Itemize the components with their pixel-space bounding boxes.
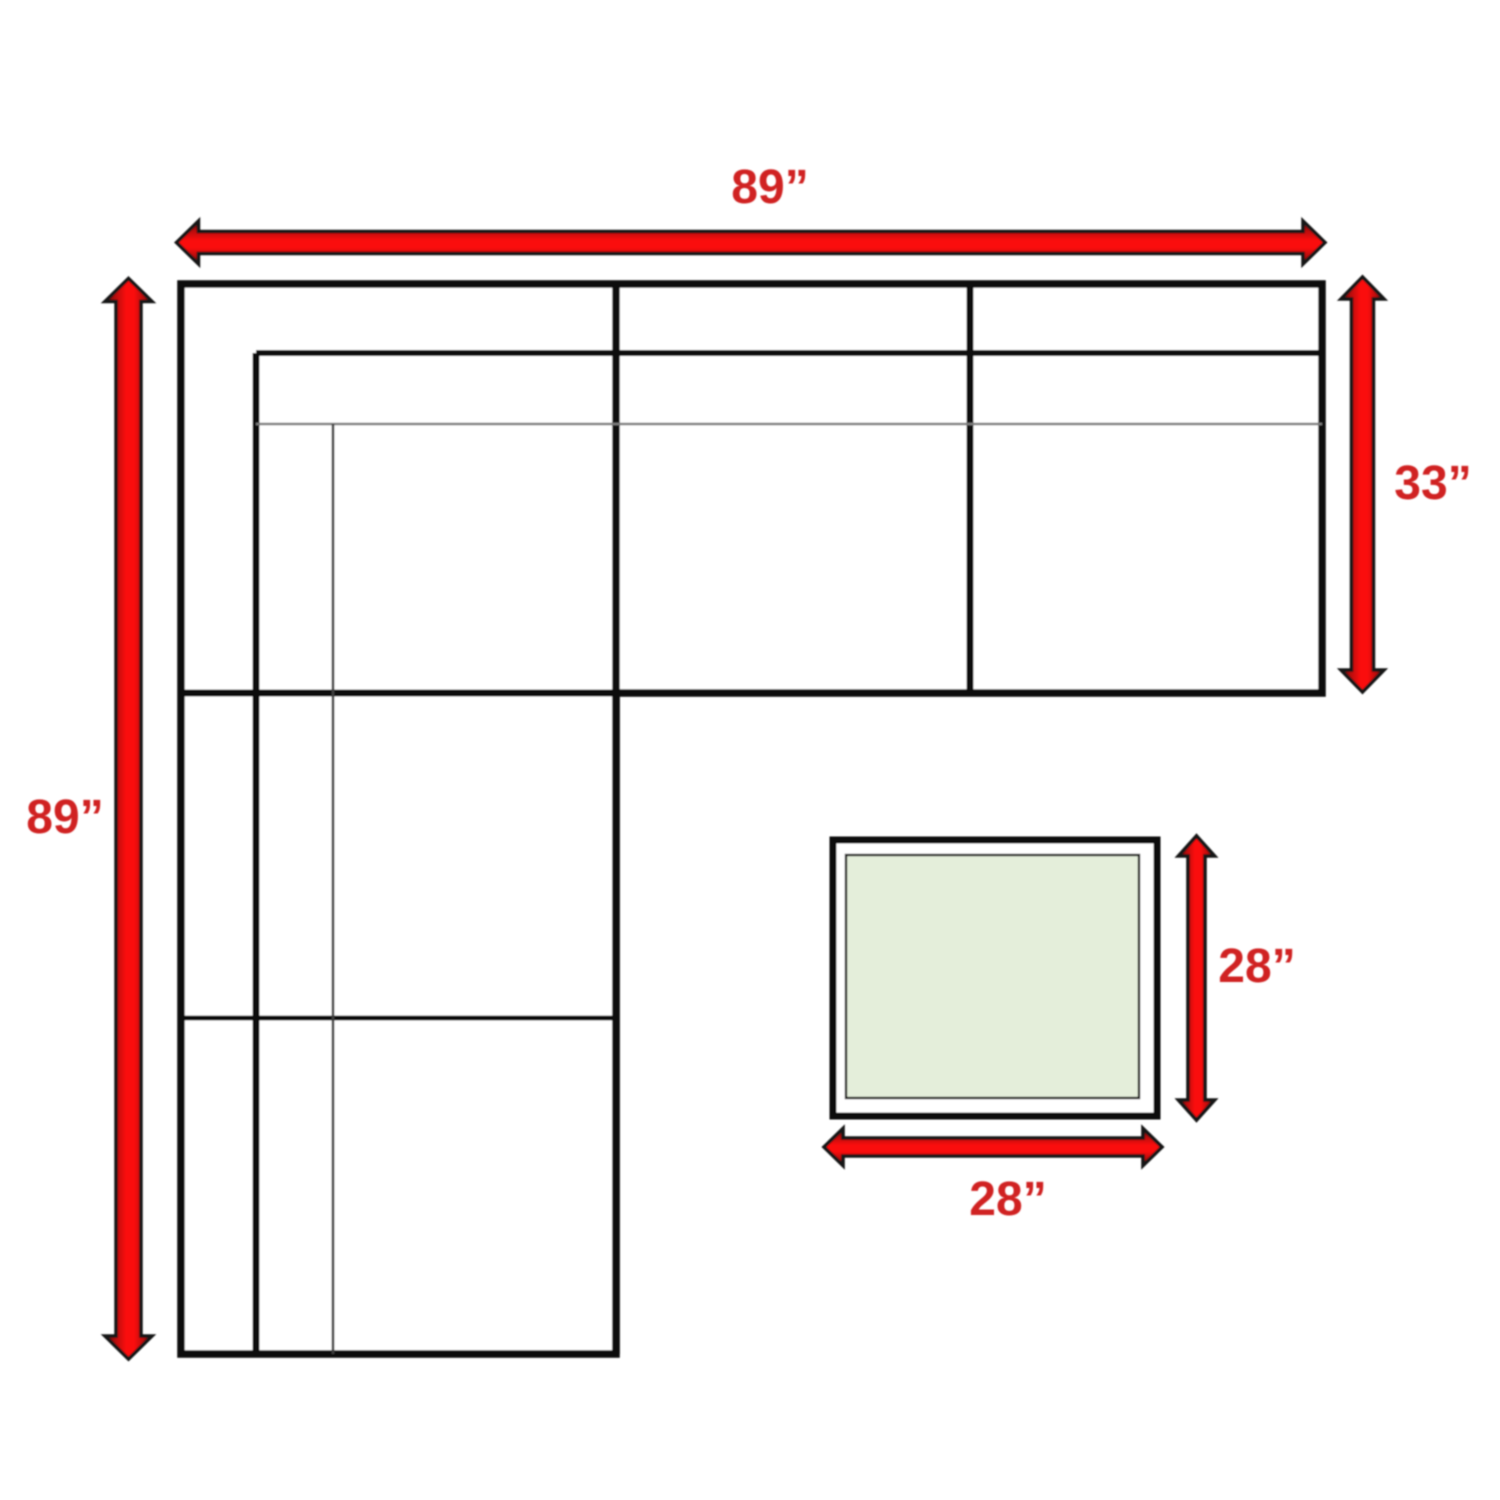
svg-text:28”: 28”	[1218, 940, 1295, 993]
svg-text:89”: 89”	[731, 161, 808, 214]
svg-text:28”: 28”	[969, 1173, 1046, 1226]
svg-text:33”: 33”	[1394, 457, 1471, 510]
svg-text:89”: 89”	[26, 791, 103, 844]
